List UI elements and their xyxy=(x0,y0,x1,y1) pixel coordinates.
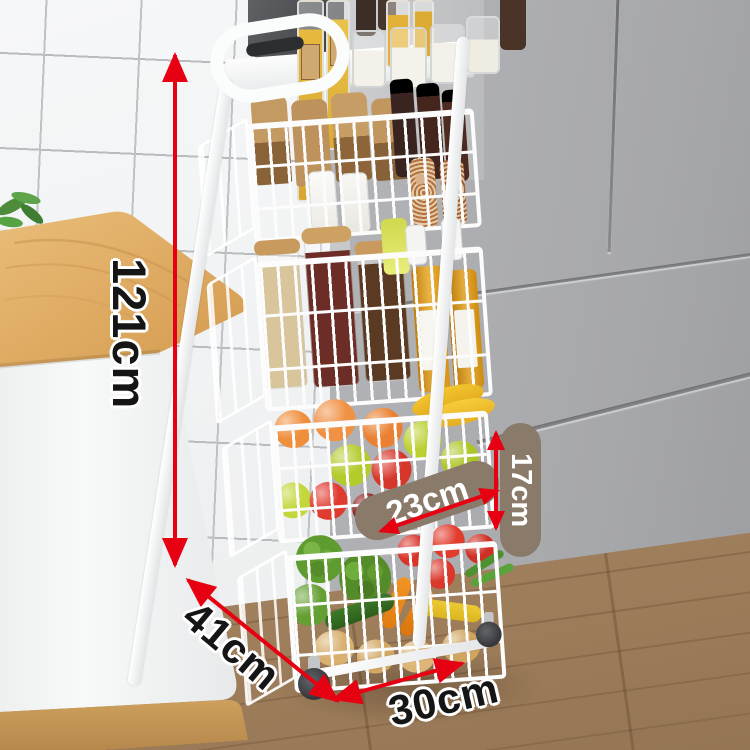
basket-height-pill: 17cm xyxy=(500,423,541,557)
cork-lid xyxy=(301,225,352,244)
kitchen-cart-product-photo: 121cm 41cm 30cm 23cm 17cm xyxy=(0,0,750,750)
arrow-head-icon xyxy=(487,430,505,450)
cork-lid xyxy=(254,238,301,256)
basket-height-label: 17cm xyxy=(504,453,537,527)
sauce-bottle-dark xyxy=(500,0,526,50)
arrow-head-icon xyxy=(162,52,188,82)
glass-jar xyxy=(466,16,500,74)
height-dimension-label: 121cm xyxy=(102,258,157,409)
arrow-head-icon xyxy=(487,511,505,531)
powder-jar xyxy=(352,30,386,88)
arrow-head-icon xyxy=(162,538,188,568)
